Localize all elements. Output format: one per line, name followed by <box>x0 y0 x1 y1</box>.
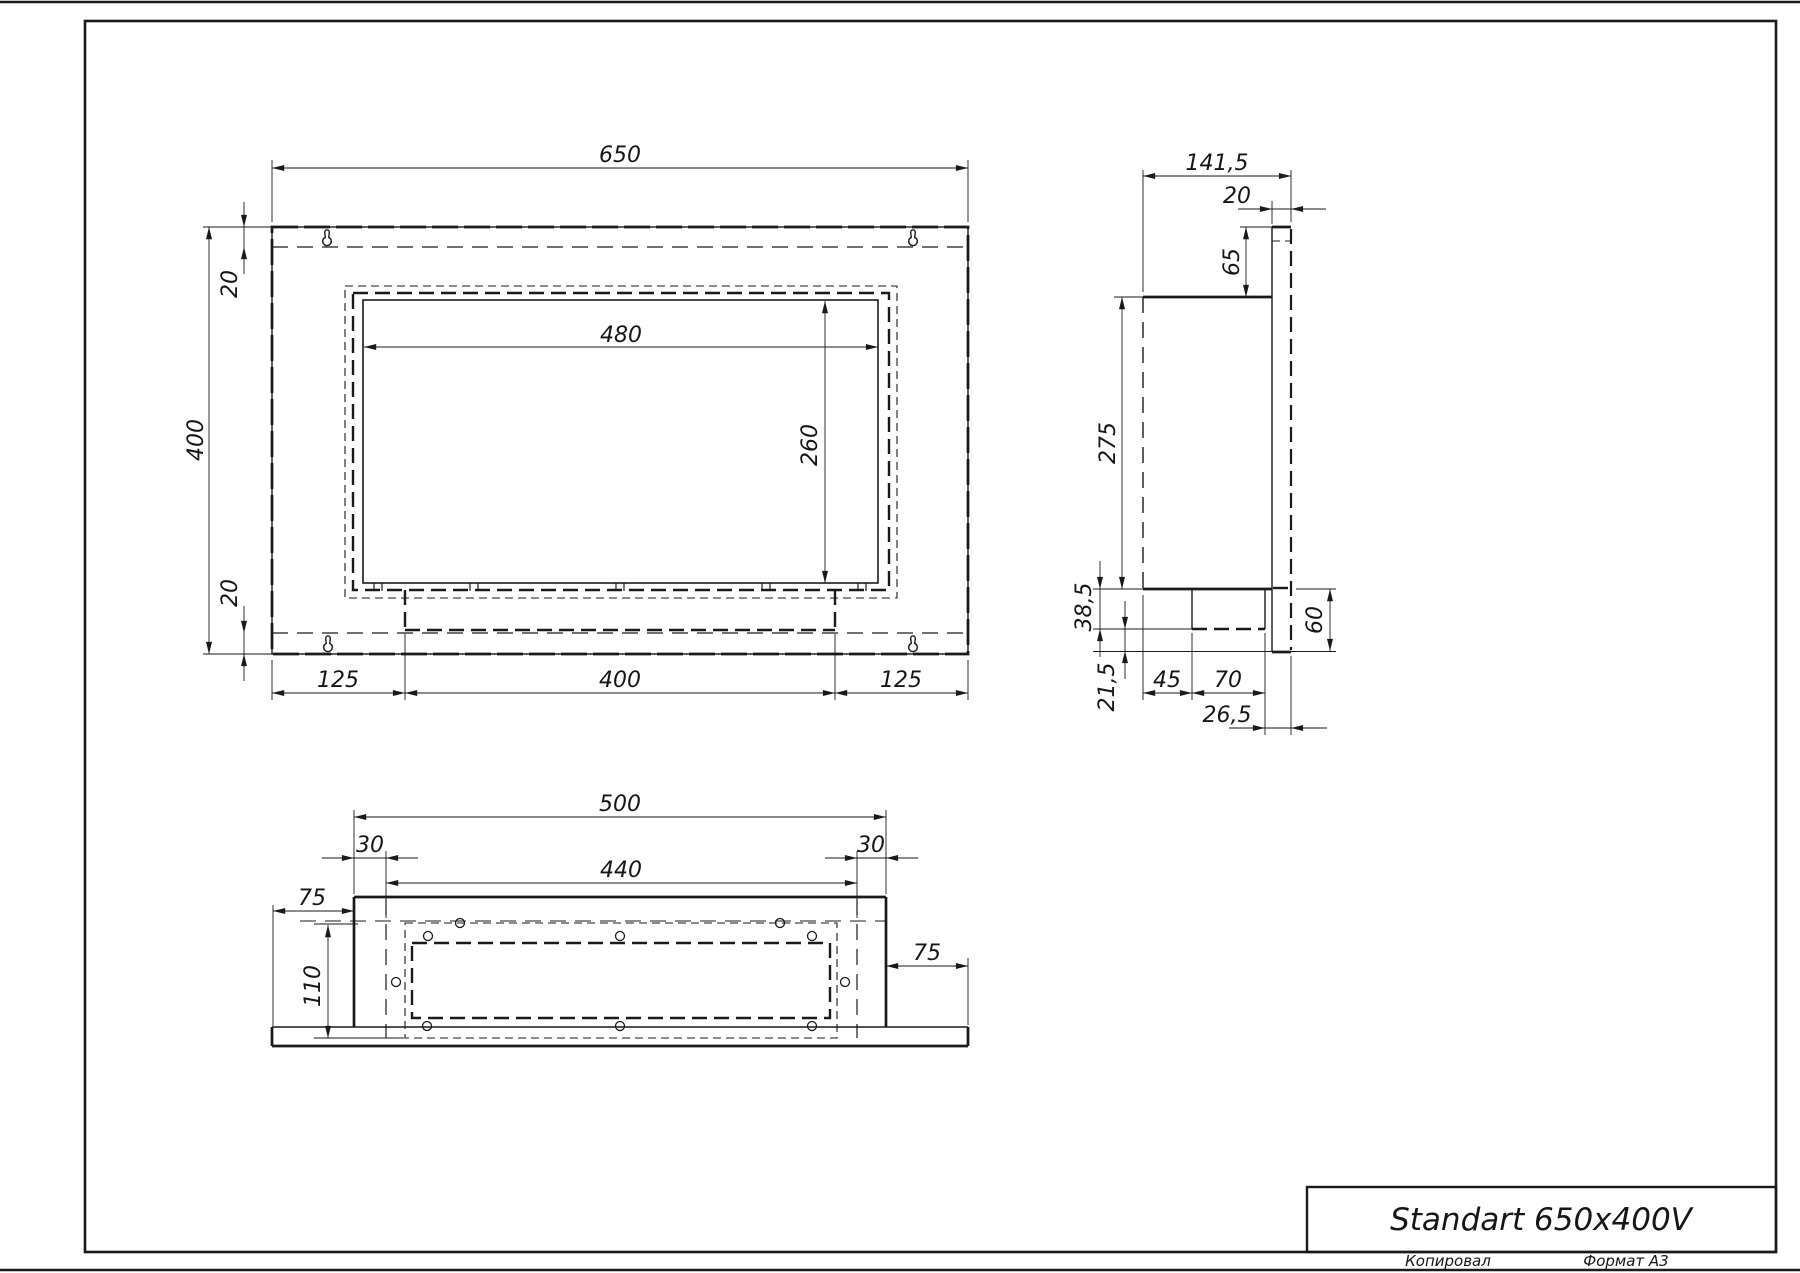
side-extension-lines <box>1093 170 1336 735</box>
dim-bottom-left-flange: 75 <box>298 886 326 911</box>
format-label: Формат А3 <box>1583 1252 1668 1270</box>
front-burner-hidden <box>405 590 835 630</box>
dim-front-top-offset: 20 <box>218 270 243 298</box>
bottom-view-holes <box>392 919 850 1031</box>
dim-bottom-inner-width: 440 <box>600 858 642 883</box>
dim-side-front-gap: 45 <box>1153 668 1181 693</box>
bottom-view: 500 30 30 440 75 75 110 <box>272 792 968 1046</box>
bottom-view-outline <box>272 897 968 1046</box>
drawing-canvas: 650 400 20 20 480 260 125 400 125 <box>0 0 1800 1273</box>
side-dimension-lines <box>1100 176 1330 728</box>
drawing-sheet: 650 400 20 20 480 260 125 400 125 <box>0 0 1800 1273</box>
product-title: Standart 650x400V <box>1390 1202 1695 1238</box>
dim-front-opening-width: 480 <box>600 323 642 348</box>
sheet-footer: Копировал Формат А3 <box>1405 1252 1669 1270</box>
title-block: Standart 650x400V <box>1307 1187 1776 1252</box>
dim-front-overall-width: 650 <box>599 143 641 168</box>
dim-side-overall-depth: 141,5 <box>1186 151 1249 176</box>
side-view: 141,5 20 65 275 38,5 21,5 45 70 26,5 60 <box>1072 151 1336 735</box>
sheet-border <box>0 2 1800 1270</box>
dim-side-lower-step: 38,5 <box>1072 583 1097 632</box>
dim-bottom-right-flange: 75 <box>913 941 941 966</box>
dim-side-top-inset: 65 <box>1220 248 1245 276</box>
dim-front-bottom-center: 400 <box>599 668 641 693</box>
front-view: 650 400 20 20 480 260 125 400 125 <box>184 143 968 700</box>
dim-side-back-gap: 26,5 <box>1203 703 1252 728</box>
dim-bottom-body-depth: 110 <box>301 965 326 1007</box>
dim-side-lower-gap: 21,5 <box>1095 663 1120 712</box>
dim-bottom-body-width: 500 <box>599 792 641 817</box>
copied-label: Копировал <box>1405 1252 1491 1270</box>
dim-front-bottom-right: 125 <box>880 668 922 693</box>
dim-front-opening-height: 260 <box>798 424 823 466</box>
dim-side-burner-depth: 70 <box>1214 668 1242 693</box>
dim-bottom-left-inset: 30 <box>356 833 384 858</box>
dim-bottom-right-inset: 30 <box>857 833 885 858</box>
dim-side-frame-depth: 20 <box>1223 184 1251 209</box>
dim-front-bottom-offset: 20 <box>218 579 243 607</box>
dim-front-bottom-left: 125 <box>317 668 359 693</box>
dim-side-body-height: 275 <box>1096 422 1121 464</box>
dim-side-lower-height: 60 <box>1303 606 1328 634</box>
side-view-outline <box>1143 227 1291 652</box>
front-extension-lines <box>203 160 968 700</box>
dim-front-overall-height: 400 <box>184 419 209 461</box>
